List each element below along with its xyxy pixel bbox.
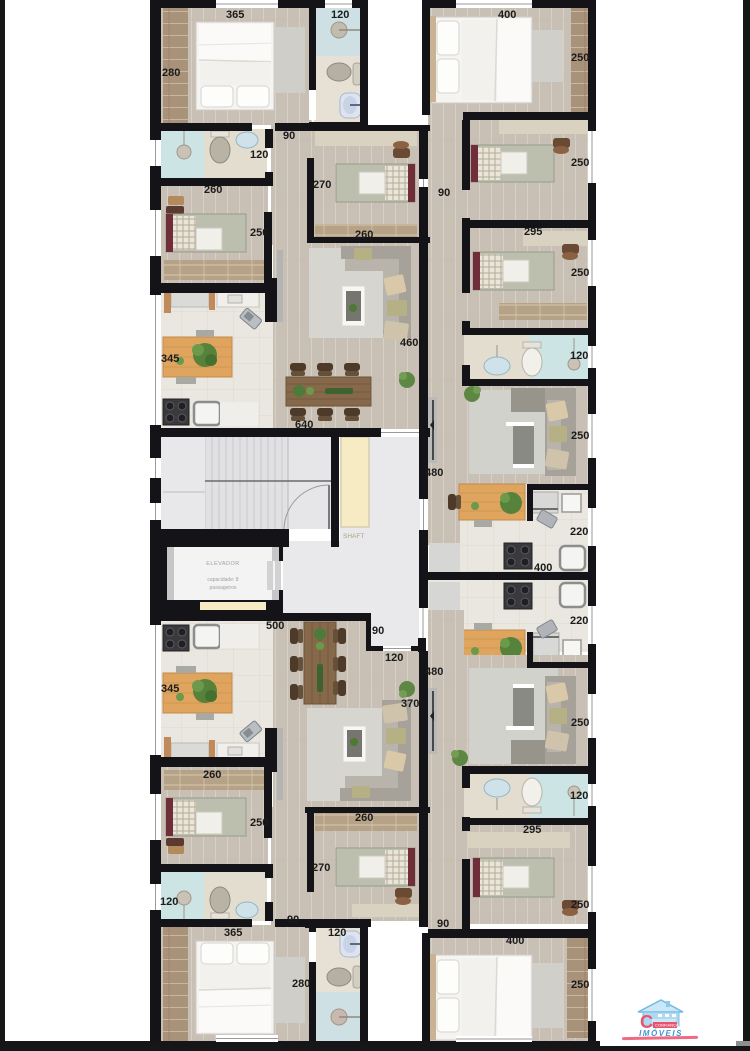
svg-text:120: 120 — [385, 652, 403, 664]
svg-text:480: 480 — [425, 666, 443, 678]
svg-text:120: 120 — [570, 350, 588, 362]
svg-text:370: 370 — [401, 698, 419, 710]
svg-text:260: 260 — [355, 812, 373, 824]
svg-text:250: 250 — [571, 267, 589, 279]
svg-text:250: 250 — [571, 52, 589, 64]
svg-text:260: 260 — [204, 184, 222, 196]
svg-text:640: 640 — [295, 419, 313, 431]
svg-text:120: 120 — [331, 9, 349, 21]
svg-text:365: 365 — [226, 9, 244, 21]
svg-text:400: 400 — [498, 9, 516, 21]
svg-text:90: 90 — [437, 918, 449, 930]
svg-text:260: 260 — [203, 769, 221, 781]
svg-text:220: 220 — [570, 615, 588, 627]
svg-text:250: 250 — [250, 817, 268, 829]
svg-text:280: 280 — [162, 67, 180, 79]
svg-text:CONFIANÇA: CONFIANÇA — [655, 1023, 679, 1028]
svg-text:365: 365 — [224, 927, 242, 939]
svg-text:280: 280 — [292, 978, 310, 990]
svg-text:90: 90 — [372, 625, 384, 637]
svg-text:220: 220 — [570, 526, 588, 538]
svg-text:SHAFT: SHAFT — [343, 533, 364, 540]
svg-text:90: 90 — [287, 914, 299, 926]
svg-text:345: 345 — [161, 683, 179, 695]
svg-text:120: 120 — [250, 149, 268, 161]
svg-text:270: 270 — [312, 862, 330, 874]
svg-text:90: 90 — [283, 130, 295, 142]
svg-text:120: 120 — [160, 896, 178, 908]
svg-text:345: 345 — [161, 353, 179, 365]
svg-text:120: 120 — [570, 790, 588, 802]
svg-text:260: 260 — [355, 229, 373, 241]
svg-text:270: 270 — [313, 179, 331, 191]
svg-text:passageiros: passageiros — [210, 585, 237, 591]
svg-text:90: 90 — [438, 187, 450, 199]
svg-text:250: 250 — [571, 157, 589, 169]
svg-text:120: 120 — [328, 927, 346, 939]
svg-text:400: 400 — [506, 935, 524, 947]
svg-text:460: 460 — [400, 337, 418, 349]
svg-text:250: 250 — [571, 717, 589, 729]
svg-text:295: 295 — [523, 824, 541, 836]
svg-text:250: 250 — [571, 430, 589, 442]
svg-text:capacidade: 8: capacidade: 8 — [207, 577, 238, 583]
svg-text:500: 500 — [266, 620, 284, 632]
svg-text:250: 250 — [571, 979, 589, 991]
svg-text:295: 295 — [524, 226, 542, 238]
svg-text:480: 480 — [425, 467, 443, 479]
svg-text:ELEVADOR: ELEVADOR — [206, 561, 240, 567]
svg-text:250: 250 — [571, 899, 589, 911]
svg-text:400: 400 — [534, 562, 552, 574]
svg-text:250: 250 — [250, 227, 268, 239]
